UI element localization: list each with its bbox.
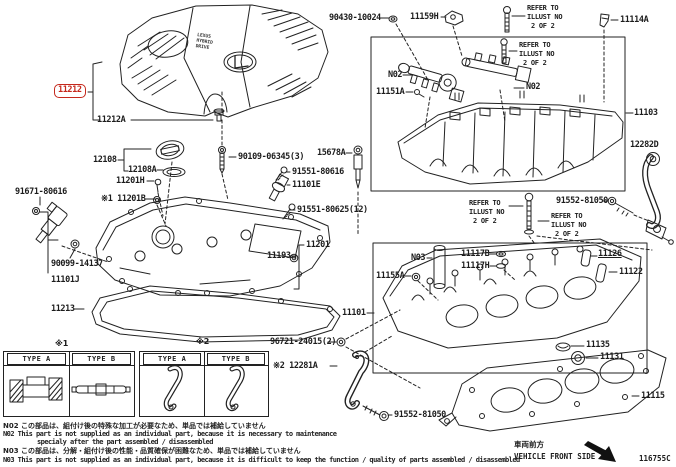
part-label-11101J[interactable]: 11101J (51, 276, 79, 285)
part-label-11122[interactable]: 11122 (619, 268, 643, 277)
grommet-90430-icon (389, 16, 397, 22)
bolt-top-1-icon (504, 7, 511, 33)
note-marker-n03: N03 (411, 254, 425, 263)
valve-guide-11126-icon (581, 249, 592, 266)
part-label-11115[interactable]: 11115 (641, 392, 665, 401)
table1-header-type-a: TYPE A (7, 353, 66, 365)
bolt-91552-bottom-icon (363, 406, 389, 421)
part-label-11131[interactable]: 11131 (600, 353, 624, 362)
refer-note-4: REFER TO ILLUST NO 2 OF 2 (551, 212, 586, 239)
refer-note-line: REFER TO (551, 212, 586, 221)
parts-diagram-page: LEXUS HYBRID DRIVE 90430-10024 11159H 11… (0, 0, 676, 467)
note-marker-n02-2: N02 (526, 83, 540, 92)
refer-note-line: ILLUST NO (519, 50, 554, 59)
injector-icon (354, 146, 362, 188)
engine-cover-drawing (120, 5, 328, 117)
oil-cap-icon (154, 138, 185, 161)
type-table-1: TYPE A TYPE B (3, 351, 135, 417)
part-label-90099-14137[interactable]: 90099-14137 (51, 260, 103, 269)
part-label-12282D[interactable]: 12282D (630, 141, 658, 150)
camshaft-assembly-1 (394, 60, 467, 102)
note-n03-japanese: N03 この部品は、分解・組付け後の性能・品質確保が困難なため、単品では補給して… (3, 446, 301, 456)
part-label-11135[interactable]: 11135 (586, 341, 610, 350)
table1-header-type-b: TYPE B (72, 353, 131, 365)
refer-note-3: REFER TO ILLUST NO 2 OF 2 (469, 199, 504, 226)
part-label-11117B[interactable]: 11117B (461, 250, 489, 259)
part-label-90109-06345[interactable]: 90109-06345(3) (238, 153, 304, 162)
bolt-91552-top-icon (608, 197, 633, 216)
refer-note-line: REFER TO (469, 199, 504, 208)
part-label-90430-10024[interactable]: 90430-10024 (329, 14, 381, 23)
refer-note-line: 2 OF 2 (527, 22, 562, 31)
refer-note-line: 2 OF 2 (551, 230, 586, 239)
part-label-11212A[interactable]: 11212A (97, 116, 125, 125)
table1-column-divider (69, 352, 70, 416)
part-label-91551-80625[interactable]: 91551-80625(12) (297, 206, 368, 215)
sensor-11159H-icon (445, 11, 463, 25)
plug-11135-icon (556, 343, 570, 351)
engine-cover-text: LEXUS HYBRID DRIVE (195, 32, 214, 51)
part-label-11155A[interactable]: 11155A (376, 272, 404, 281)
part-label-91552-81050-top[interactable]: 91552-81050 (556, 197, 608, 206)
part-label-11201H[interactable]: 11201H (116, 177, 144, 186)
part-label-91552-81050-bottom[interactable]: 91552-81050 (394, 411, 446, 420)
diagram-code: 116755C (639, 454, 671, 463)
refer-note-line: 2 OF 2 (469, 217, 504, 226)
vehicle-front-label-jp: 車両前方 (514, 439, 544, 450)
cam-housing-drawing (398, 91, 623, 184)
table2-header-type-b: TYPE B (207, 353, 265, 365)
part-label-11117H[interactable]: 11117H (461, 262, 489, 271)
clip-11114A-icon (600, 14, 609, 27)
valve-cover-drawing (96, 197, 330, 296)
head-gasket-drawing (439, 350, 666, 431)
part-label-11212-highlighted[interactable]: 11212 (54, 84, 86, 98)
part-label-15678A[interactable]: 15678A (317, 149, 345, 158)
part-label-11126[interactable]: 11126 (598, 250, 622, 259)
cap-gasket-icon (163, 168, 185, 177)
hook-12281A-drawing (348, 353, 367, 406)
note-n02-english-1: N02 This part is not supplied as an indi… (3, 430, 336, 438)
note-n03-english: N03 This part is not supplied as an indi… (3, 456, 520, 464)
table1-ref-mark: ※1 (55, 339, 68, 348)
bolt-11151A-icon (415, 90, 425, 98)
ring-11155A-icon (412, 273, 420, 281)
seal-11117H-icon (497, 264, 506, 269)
refer-note-line: REFER TO (527, 4, 562, 13)
stud-tube-N03-icon (434, 246, 445, 289)
refer-note-2: REFER TO ILLUST NO 2 OF 2 (519, 41, 554, 68)
refer-note-line: ILLUST NO (469, 208, 504, 217)
table2-ref-mark: ※2 (196, 337, 209, 346)
refer-note-line: ILLUST NO (551, 221, 586, 230)
part-label-11213[interactable]: 11213 (51, 305, 75, 314)
bolt-90109-icon (219, 147, 226, 174)
valve-guide-11122-icon (595, 263, 607, 282)
part-label-12108[interactable]: 12108 (93, 156, 117, 165)
camshaft-housing-box (371, 37, 625, 191)
part-label-11114A[interactable]: 11114A (620, 16, 648, 25)
refer-note-1: REFER TO ILLUST NO 2 OF 2 (527, 4, 562, 31)
bolt-head-long-icon (525, 193, 534, 234)
ignition-coil-icon (28, 202, 79, 248)
part-label-91671-80616[interactable]: 91671-80616 (15, 188, 67, 197)
part-label-11201[interactable]: 11201 (306, 241, 330, 250)
ring-96721-icon (337, 338, 345, 346)
part-label-11101[interactable]: 11101 (342, 309, 366, 318)
part-label-91551-80616[interactable]: 91551-80616 (292, 168, 344, 177)
refer-note-line: 2 OF 2 (519, 59, 554, 68)
note-n02-english-2: specialy after the part assembled / disa… (37, 438, 213, 446)
part-label-12281A[interactable]: ※2 12281A (273, 362, 317, 371)
part-label-11201B[interactable]: ※1 11201B (101, 195, 145, 204)
cam-sensor-icon (266, 173, 290, 202)
part-label-96721-24015[interactable]: 96721-24015(2) (270, 338, 336, 347)
part-label-11103[interactable]: 11103 (634, 109, 658, 118)
type-table-2: TYPE A TYPE B (139, 351, 269, 417)
part-label-11151A[interactable]: 11151A (376, 88, 404, 97)
table2-column-divider (204, 352, 205, 416)
part-label-11159H[interactable]: 11159H (410, 13, 438, 22)
vehicle-front-label-en: VEHICLE FRONT SIDE (514, 452, 595, 461)
refer-note-line: REFER TO (519, 41, 554, 50)
cover-gasket-drawing (92, 286, 340, 342)
part-label-11193[interactable]: 11193 (267, 252, 291, 261)
chain-guide-drawing (645, 153, 673, 245)
part-label-11101E[interactable]: 11101E (292, 181, 320, 190)
part-label-12108A[interactable]: 12108A (128, 166, 156, 175)
note-marker-n02-1: N02 (388, 71, 402, 80)
table2-header-type-a: TYPE A (143, 353, 201, 365)
bolt-top-2-icon (501, 39, 507, 63)
refer-note-line: ILLUST NO (527, 13, 562, 22)
